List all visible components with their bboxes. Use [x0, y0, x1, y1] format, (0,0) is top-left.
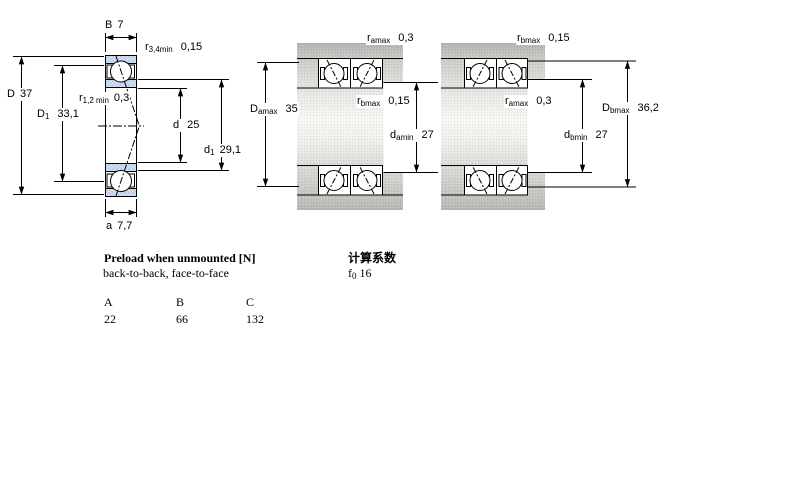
dim-Damax: Damax35	[249, 103, 299, 116]
calc-factors-title: 计算系数	[348, 251, 396, 265]
preload-val-c: 132	[246, 312, 264, 326]
dim-a: a7,7	[105, 220, 133, 233]
dim-rbmax-mid: rbmax0,15	[356, 95, 411, 108]
preload-col-b: B	[176, 295, 184, 309]
dim-Dbmax: Dbmax36,2	[601, 102, 660, 115]
preload-title: Preload when unmounted [N]	[104, 251, 255, 265]
dim-dbmin: dbmin27	[563, 129, 609, 142]
dim-D1: D133,1	[36, 108, 80, 121]
dim-d1: d129,1	[203, 144, 242, 157]
paired-bearing-view-b	[441, 43, 636, 210]
drawing-linework	[0, 0, 800, 500]
dim-r12min: r1,2 min0,3	[78, 92, 130, 105]
preload-val-a: 22	[104, 312, 116, 326]
dim-rbmax-right: rbmax0,15	[516, 32, 571, 45]
dim-damin: damin27	[389, 129, 435, 142]
bearing-dimension-diagram: B7 r3,4min0,15 D37 D133,1 r1,2 min0,3 d2…	[0, 0, 800, 500]
dim-r34min: r3,4min0,15	[144, 41, 203, 54]
preload-col-a: A	[104, 295, 113, 309]
paired-bearing-view-a	[257, 43, 438, 210]
dim-ramax-mid: ramax0,3	[366, 32, 415, 45]
dim-d: d25	[172, 119, 200, 132]
dim-D: D37	[6, 88, 33, 101]
dim-ramax-right: ramax0,3	[504, 95, 553, 108]
preload-subtitle: back-to-back, face-to-face	[103, 266, 229, 280]
dim-B: B7	[104, 19, 124, 32]
preload-val-b: 66	[176, 312, 188, 326]
preload-col-c: C	[246, 295, 254, 309]
calc-factor-f0: f0 16	[348, 266, 372, 281]
